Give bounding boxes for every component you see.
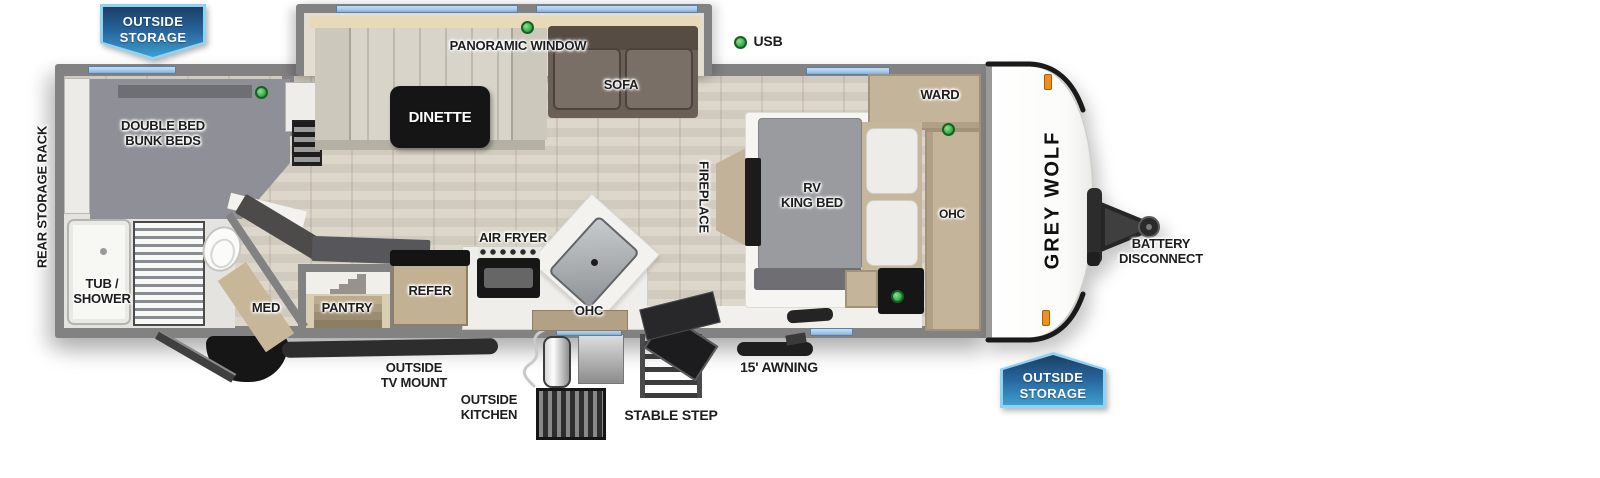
banner-top-line1: OUTSIDE — [100, 14, 206, 30]
window-bottom-bedroom — [810, 328, 853, 336]
bathtub-drain — [100, 248, 107, 255]
dinette-bench-left — [315, 28, 351, 140]
usb-label: USB — [754, 34, 783, 49]
bedroom-ohc-label: OHC — [939, 207, 965, 222]
pantry-label: PANTRY — [322, 300, 373, 315]
bunk-led-indicator — [255, 86, 268, 99]
stove-knob-strip — [478, 247, 540, 258]
bunk-room-label: DOUBLE BED BUNK BEDS — [121, 118, 205, 148]
stove-oven-band — [484, 268, 533, 288]
sofa-label: SOFA — [604, 77, 639, 92]
cap-body — [988, 66, 1093, 338]
brand-logo: GREY WOLF — [1046, 131, 1061, 270]
floorplan-canvas: DOUBLE BED BUNK BEDS TUB / SHOWER MED PA… — [0, 0, 1600, 478]
king-bed-label: RV KING BED — [781, 180, 843, 210]
awning-label: 15' AWNING — [740, 360, 818, 375]
outside-tv-mount-label: OUTSIDE TV MOUNT — [381, 360, 447, 390]
bunk-bed — [90, 79, 290, 219]
awning-hardware — [737, 342, 813, 356]
battery-disconnect-label: BATTERY DISCONNECT — [1119, 236, 1203, 266]
bunk-shelf — [118, 85, 252, 98]
outside-kitchen-fridge — [543, 336, 571, 388]
window-rear-top — [88, 66, 176, 74]
banner-top-text: OUTSIDE STORAGE — [100, 14, 206, 46]
banner-top-line2: STORAGE — [100, 30, 206, 46]
panoramic-window-label: PANORAMIC WINDOW — [450, 38, 587, 53]
clearance-marker-bottom — [1042, 310, 1050, 326]
bed-tv — [745, 158, 761, 246]
front-cap — [975, 52, 1210, 352]
bedroom-ohc — [925, 130, 981, 331]
rear-storage-rack-label: REAR STORAGE RACK — [35, 126, 50, 268]
usb-led-icon — [734, 36, 747, 49]
banner-bottom-text: OUTSIDE STORAGE — [1000, 370, 1106, 402]
bedroom-led-indicator — [891, 290, 904, 303]
fireplace-console — [716, 148, 746, 246]
bunk-label-line1: DOUBLE BED — [121, 118, 205, 133]
ward-label: WARD — [921, 87, 960, 102]
battery-disconnect-line1: BATTERY — [1119, 236, 1203, 251]
bed-corner-cabinet — [845, 270, 878, 308]
pillow-top — [866, 128, 918, 194]
slideout-window-left — [336, 5, 518, 13]
outside-tv-mount-line1: OUTSIDE — [381, 360, 447, 375]
shower-pan — [133, 221, 205, 326]
tub-shower-line2: SHOWER — [73, 291, 130, 306]
pillow-bottom — [866, 200, 918, 266]
slideout-led-indicator — [521, 21, 534, 34]
refer-label: REFER — [408, 283, 451, 298]
wardrobe-led-indicator — [942, 123, 955, 136]
outside-kitchen-line1: OUTSIDE — [461, 392, 517, 407]
refrigerator-top — [390, 250, 470, 266]
king-bed-line2: KING BED — [781, 195, 843, 210]
bunk-label-line2: BUNK BEDS — [121, 133, 205, 148]
outside-kitchen-line2: KITCHEN — [461, 407, 517, 422]
tub-shower-line1: TUB / — [73, 276, 130, 291]
bathtub — [67, 219, 131, 325]
clearance-marker-top — [1044, 74, 1052, 90]
med-label: MED — [252, 300, 280, 315]
outside-storage-banner-top: OUTSIDE STORAGE — [100, 4, 206, 60]
outside-kitchen-panel — [578, 334, 624, 384]
banner-bottom-line1: OUTSIDE — [1000, 370, 1106, 386]
air-fryer-stove — [477, 258, 540, 298]
dinette-label: DINETTE — [409, 110, 472, 125]
sink-drain — [591, 259, 598, 266]
outside-storage-banner-bottom: OUTSIDE STORAGE — [1000, 352, 1106, 408]
outside-tv-mount-line2: TV MOUNT — [381, 375, 447, 390]
slideout-window-right — [536, 5, 698, 13]
banner-bottom-line2: STORAGE — [1000, 386, 1106, 402]
outside-kitchen-grill — [536, 388, 606, 440]
stable-step-label: STABLE STEP — [624, 408, 717, 423]
fireplace-label: FIREPLACE — [697, 161, 712, 233]
battery-disconnect-line2: DISCONNECT — [1119, 251, 1203, 266]
kitchen-ohc-label: OHC — [575, 303, 603, 318]
king-bed-line1: RV — [781, 180, 843, 195]
cap-rear-edge — [986, 66, 992, 338]
pantry-shelf-4 — [314, 320, 382, 328]
outside-kitchen-label: OUTSIDE KITCHEN — [461, 392, 517, 422]
bunk-room-closet — [64, 78, 90, 214]
air-fryer-label: AIR FRYER — [479, 230, 547, 245]
tub-shower-label: TUB / SHOWER — [73, 276, 130, 306]
outside-tv-mount-bar — [282, 338, 498, 358]
